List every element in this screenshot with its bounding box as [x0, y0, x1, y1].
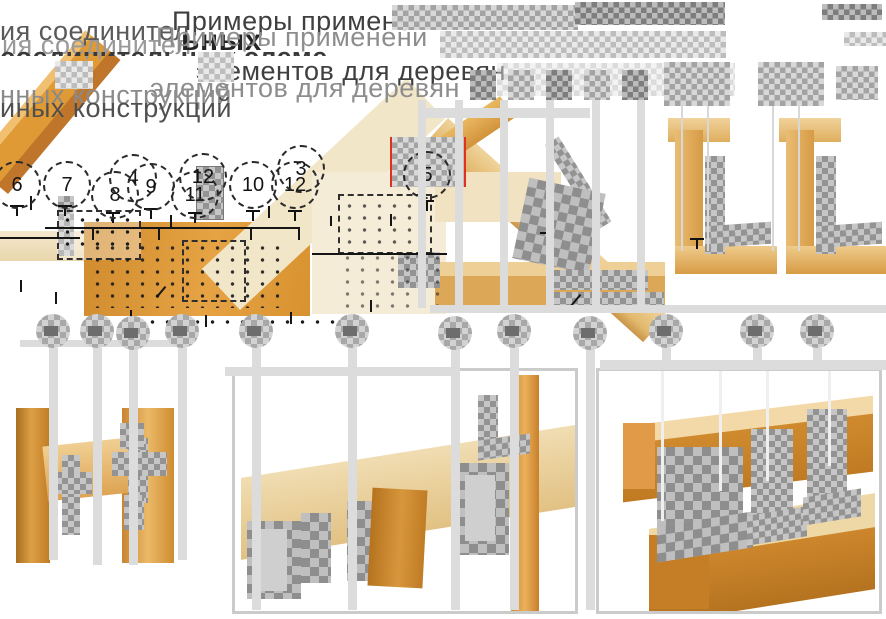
panel-angle-brackets	[596, 368, 882, 614]
pixelated-callout-core	[247, 326, 261, 336]
pixelated-callout	[335, 314, 369, 348]
callout-number: 7	[61, 174, 72, 197]
pixelated-label-pair	[758, 62, 824, 106]
callout-number: 10	[242, 174, 264, 197]
leader-bar-vertical	[510, 348, 519, 610]
pixelated-callout-core	[581, 328, 595, 338]
wood-frame-bottom-beam	[675, 246, 777, 274]
pixelated-callout	[649, 314, 683, 348]
nail-plate-holes	[342, 200, 426, 248]
dimension-tick	[250, 227, 252, 240]
leader-dash	[55, 292, 57, 304]
pixelated-text-bar	[822, 4, 882, 20]
joist-hanger-inner	[465, 475, 495, 541]
pixelated-label	[508, 70, 534, 100]
leader-bar-vertical	[546, 100, 554, 308]
leader-line-thin	[719, 371, 722, 491]
leader-band-horizontal	[600, 360, 886, 370]
pixelated-callout-core	[88, 326, 102, 336]
leader-bar-vertical	[93, 348, 102, 565]
pixelated-callout	[438, 316, 472, 350]
pixelated-label	[622, 70, 648, 100]
angle-bracket-foot	[705, 222, 771, 249]
t-plate-arm	[112, 452, 167, 476]
leader-bar-vertical	[129, 348, 138, 565]
leader-dash	[205, 315, 207, 327]
pixelated-patch	[198, 52, 234, 82]
callout-number: 6	[11, 174, 22, 197]
pixelated-callout-core	[446, 328, 460, 338]
leader-band-horizontal	[430, 305, 886, 313]
callout-circle-7: 7	[43, 161, 91, 209]
leader-t-mark	[690, 238, 704, 249]
pixelated-label-pair	[836, 66, 878, 100]
leader-bar-vertical	[500, 100, 508, 308]
pixelated-callout	[165, 314, 199, 348]
leader-bar-vertical	[813, 348, 822, 370]
callout-circle-5: 5	[403, 151, 451, 199]
nail-plate-holes	[90, 242, 290, 308]
angle-bracket-leg	[751, 429, 793, 521]
title-center-line2-ghost: элементов для деревян	[150, 73, 460, 104]
catalog-page: ия соединител ия соединител ьных соедини…	[0, 0, 886, 619]
pixelated-text-bar	[575, 2, 725, 25]
dimension-line	[45, 227, 300, 229]
pixelated-callout	[239, 314, 273, 348]
pixelated-patch	[55, 61, 93, 89]
leader-bar-vertical	[49, 348, 58, 560]
pixelated-callout	[740, 314, 774, 348]
pixelated-callout-core	[657, 326, 671, 336]
dimension-tick	[92, 227, 94, 240]
callout-circle-6: 6	[0, 161, 41, 209]
callout-circle-12-ghost: 12	[179, 153, 227, 201]
leader-dash	[268, 206, 270, 218]
panel-joist-hangers	[232, 368, 578, 614]
joist-hanger-inner	[259, 529, 287, 591]
wood-frame-bottom-beam	[786, 246, 886, 274]
callout-circle-9: 9	[127, 163, 175, 211]
pixelated-label	[470, 70, 496, 100]
leader-line-thin	[772, 106, 774, 251]
pixelated-callout	[36, 314, 70, 348]
pixelated-label	[584, 70, 610, 100]
pixelated-text-bar	[392, 5, 578, 30]
leader-bar-vertical	[586, 348, 595, 610]
pixelated-callout-core	[808, 326, 822, 336]
leader-dash	[20, 280, 22, 292]
pixelated-callout	[573, 316, 607, 350]
callout-number: 3	[295, 158, 306, 181]
pixelated-callout-core	[44, 326, 58, 336]
leader-bar-vertical	[252, 348, 261, 610]
pixelated-text-bar	[844, 32, 886, 46]
t-plate-leg	[62, 455, 80, 535]
leader-bar-vertical	[455, 100, 463, 308]
wood-post-left	[16, 408, 50, 563]
callout-number: 12	[192, 166, 214, 189]
leader-t-mark	[246, 210, 260, 221]
title-center-line1-ghost: Примеры применени	[156, 22, 428, 53]
pixelated-callout-core	[505, 326, 519, 336]
leader-bar-vertical	[753, 348, 762, 370]
leader-bar-vertical	[178, 348, 187, 560]
leader-bar-vertical	[662, 348, 671, 370]
leader-dash	[390, 214, 392, 226]
leader-bar-vertical	[418, 100, 426, 308]
leader-line-thin	[707, 106, 709, 251]
pixelated-callout	[116, 316, 150, 350]
leader-bar-vertical	[451, 348, 460, 610]
pixelated-callout	[800, 314, 834, 348]
dimension-line	[312, 253, 447, 255]
dimension-tick	[158, 227, 160, 240]
pixelated-callout-core	[343, 326, 357, 336]
leader-line-thin	[798, 106, 800, 251]
leader-line-thin	[828, 371, 831, 466]
leader-line-thin	[766, 371, 769, 481]
angle-bracket-leg	[807, 409, 847, 497]
leader-bar-vertical	[348, 348, 357, 610]
dimension-line	[0, 237, 80, 239]
leader-dash	[290, 312, 292, 324]
pixelated-label	[546, 70, 572, 100]
leader-line-thin	[681, 106, 683, 251]
leader-t-mark	[288, 210, 302, 221]
pixelated-text-bar	[440, 31, 726, 58]
angle-bracket-foot	[816, 222, 882, 249]
pixelated-callout-core	[124, 328, 138, 338]
leader-line-thin	[661, 371, 664, 521]
dimension-tick	[298, 227, 300, 240]
leader-bar-vertical	[637, 100, 645, 308]
wood-back-beam-end	[623, 423, 655, 489]
callout-number: 9	[145, 176, 156, 199]
pixelated-callout	[497, 314, 531, 348]
leader-dash	[170, 215, 172, 227]
wood-joist-block	[367, 488, 427, 589]
leader-dash	[370, 300, 372, 312]
joist-hanger	[301, 513, 331, 583]
pixelated-callout-core	[748, 326, 762, 336]
pixelated-label-pair	[664, 62, 730, 106]
pixelated-callout-core	[173, 326, 187, 336]
callout-circle-3-ghost: 3	[277, 145, 325, 193]
pixelated-callout	[80, 314, 114, 348]
leader-bar-vertical	[592, 100, 600, 308]
callout-circle-10: 10	[229, 161, 277, 209]
leader-dash	[330, 216, 332, 226]
